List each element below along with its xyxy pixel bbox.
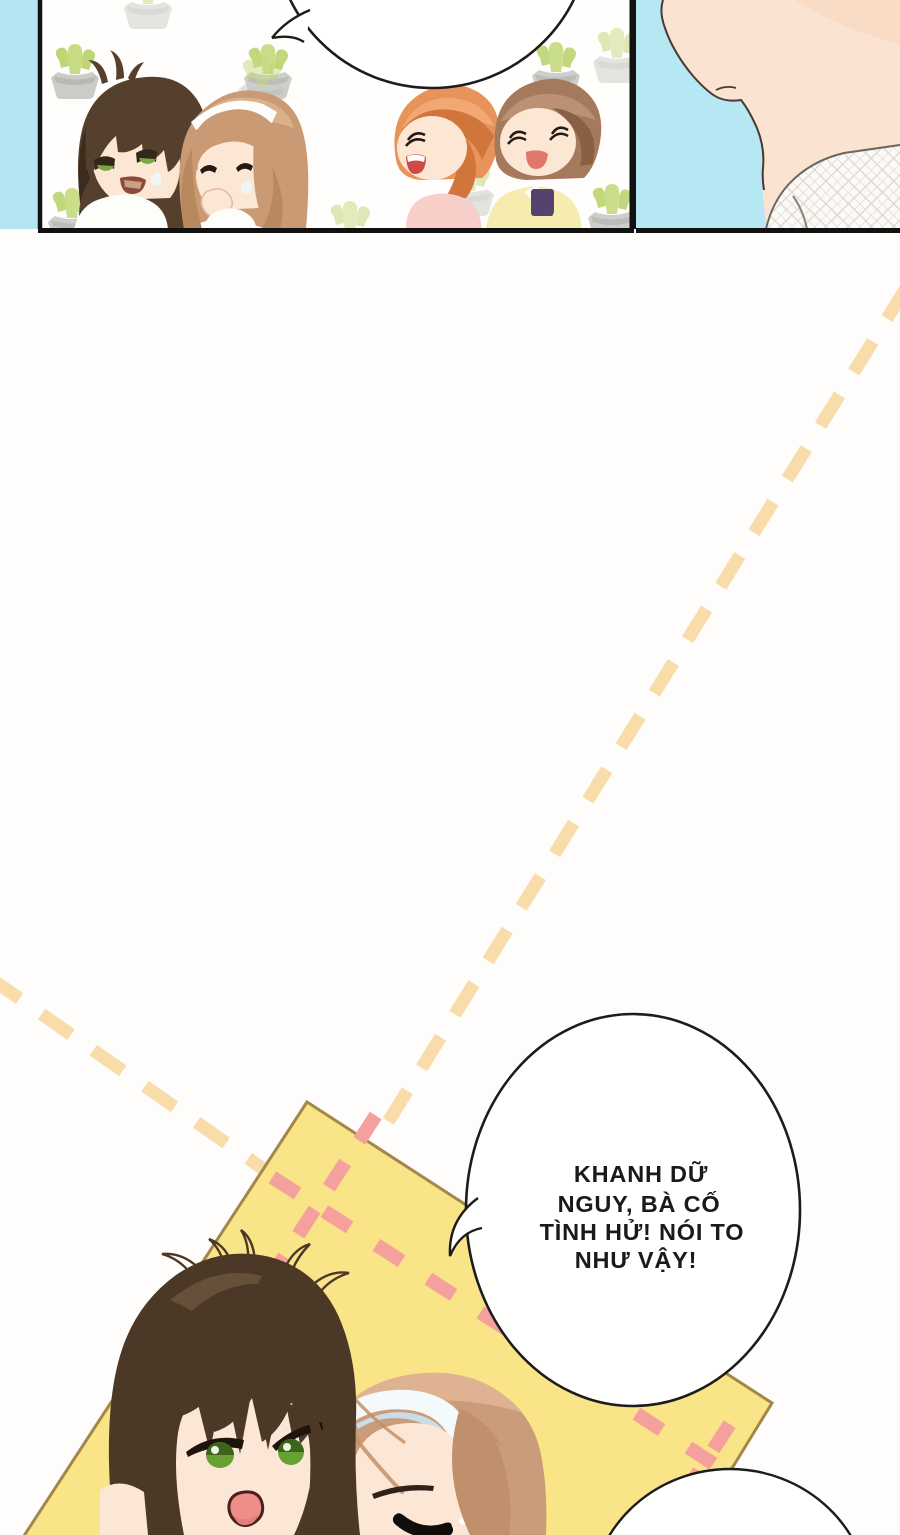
svg-text:TÌNH HỬ! NÓI TO: TÌNH HỬ! NÓI TO — [540, 1217, 745, 1245]
svg-text:KHANH DỮ: KHANH DỮ — [574, 1160, 708, 1187]
svg-text:NHƯ VẬY!: NHƯ VẬY! — [575, 1246, 698, 1273]
svg-text:NGUY, BÀ CỐ: NGUY, BÀ CỐ — [558, 1190, 721, 1217]
